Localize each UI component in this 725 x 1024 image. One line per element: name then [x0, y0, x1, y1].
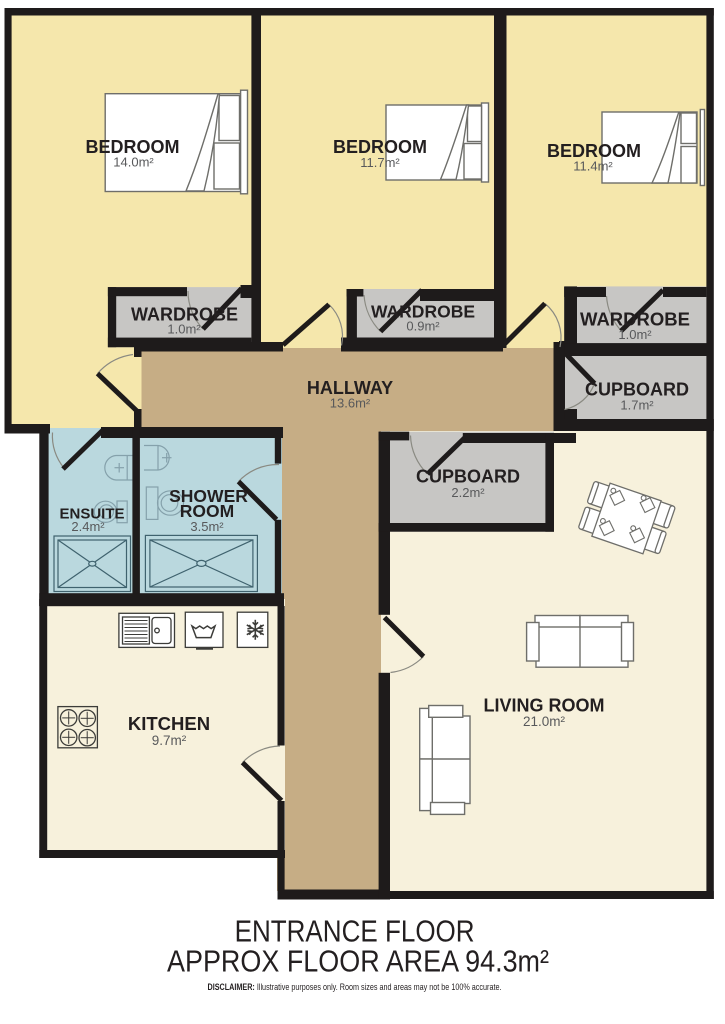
svg-text:13.6m²: 13.6m² [330, 396, 371, 411]
svg-text:1.0m²: 1.0m² [167, 322, 201, 337]
svg-text:ROOM: ROOM [180, 501, 234, 521]
svg-text:11.7m²: 11.7m² [360, 155, 400, 170]
svg-text:1.7m²: 1.7m² [620, 398, 654, 413]
svg-text:14.0m²: 14.0m² [113, 155, 154, 170]
svg-text:3.5m²: 3.5m² [190, 519, 224, 534]
svg-text:CUPBOARD: CUPBOARD [416, 467, 520, 487]
svg-text:2.2m²: 2.2m² [451, 485, 485, 500]
svg-text:11.4m²: 11.4m² [573, 159, 613, 174]
svg-text:0.9m²: 0.9m² [406, 319, 440, 334]
svg-text:BEDROOM: BEDROOM [333, 137, 427, 157]
svg-text:21.0m²: 21.0m² [523, 714, 566, 729]
svg-text:9.7m²: 9.7m² [152, 733, 187, 748]
svg-text:CUPBOARD: CUPBOARD [585, 380, 689, 400]
svg-text:2.4m²: 2.4m² [71, 519, 105, 534]
svg-text:1.0m²: 1.0m² [618, 327, 652, 342]
svg-text:KITCHEN: KITCHEN [128, 713, 210, 734]
svg-text:LIVING ROOM: LIVING ROOM [484, 696, 605, 716]
svg-text:DISCLAIMER: Illustrative purpo: DISCLAIMER: Illustrative purposes only. … [208, 982, 502, 992]
svg-text:APPROX FLOOR AREA 94.3m²: APPROX FLOOR AREA 94.3m² [167, 944, 549, 979]
